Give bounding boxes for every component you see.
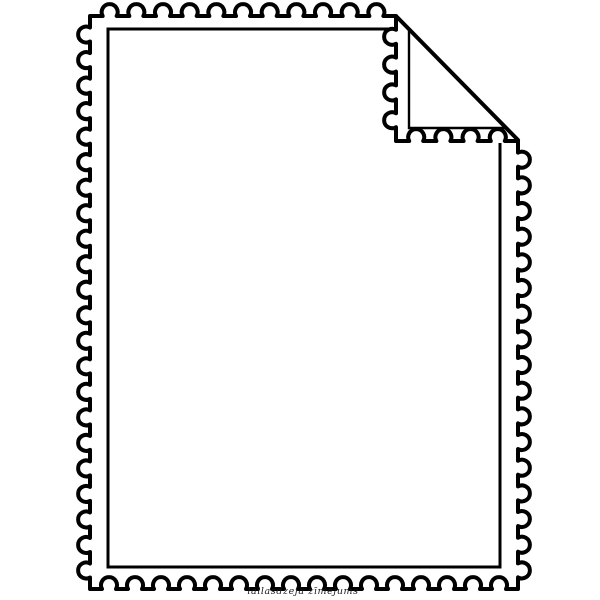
stamp-illustration: lailasdzeja zīmējums [0,0,600,600]
fold-crease-line [397,17,518,140]
artist-signature: lailasdzeja zīmējums [247,586,358,597]
stamp-illustration-page: lailasdzeja zīmējums [0,0,600,600]
stamp-perforated-outline [78,4,530,589]
